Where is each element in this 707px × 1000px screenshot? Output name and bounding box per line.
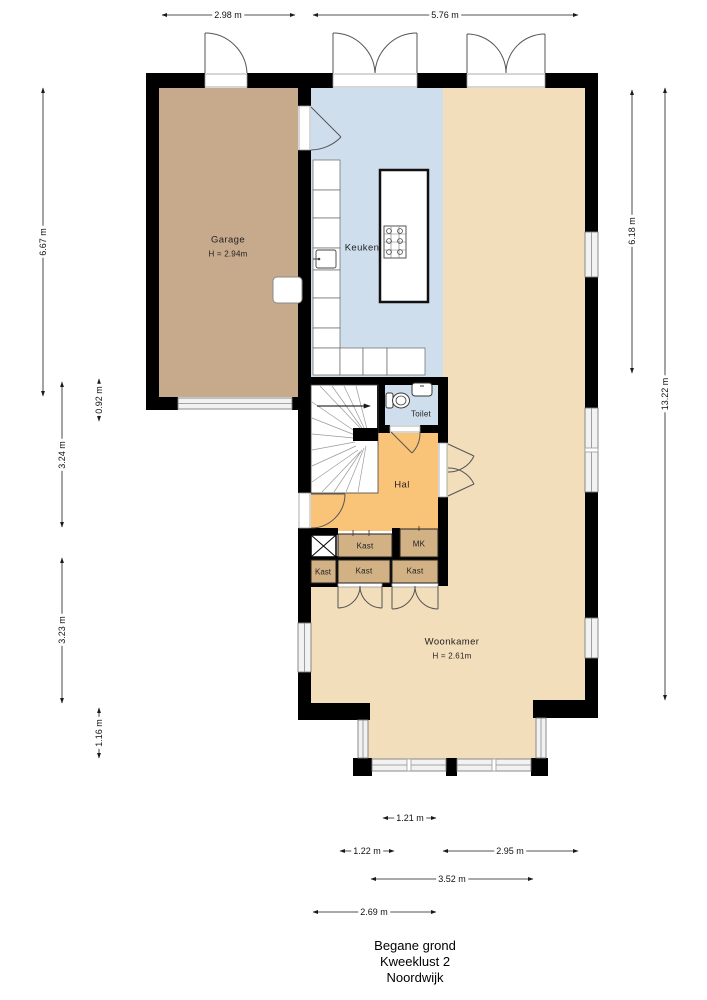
closet-label-kast-right: Kast — [407, 567, 424, 576]
room-label-toilet: Toilet — [411, 410, 431, 419]
dim-bottom-5: 2.69 m — [358, 907, 390, 917]
dim-left-3: 3.24 m — [57, 439, 67, 471]
bay-right-window — [536, 718, 546, 758]
dim-left-4: 3.23 m — [57, 614, 67, 646]
dim-top-1: 2.98 m — [212, 10, 244, 20]
right-wall-window-1 — [585, 232, 598, 277]
floors-group — [159, 88, 585, 759]
french-door-woonkamer — [467, 34, 545, 73]
toilet-icon — [386, 393, 410, 408]
closet-label-kast-small: Kast — [315, 568, 331, 577]
garage-door — [205, 33, 247, 73]
garage-window — [178, 398, 292, 409]
shaft-icon — [311, 535, 336, 557]
bay-bottom-window-1 — [372, 759, 446, 771]
room-height-garage: H = 2.94m — [209, 250, 248, 259]
right-wall-window-2 — [585, 408, 598, 492]
dim-bottom-2: 1.22 m — [351, 846, 383, 856]
left-wall-window — [298, 623, 311, 672]
stove-icon — [384, 226, 406, 258]
dim-left-1: 6.67 m — [38, 226, 48, 258]
room-label-woonkamer: Woonkamer — [425, 637, 480, 648]
dim-left-2: 0.92 m — [94, 384, 104, 416]
french-door-keuken — [333, 33, 417, 73]
dim-bottom-1: 1.21 m — [394, 813, 426, 823]
closet-label-mk: MK — [413, 540, 425, 549]
floorplan-canvas: 2.98 m 5.76 m 6.67 m 0.92 m 3.24 m 3.23 … — [0, 0, 707, 1000]
plan-title-street: Kweeklust 2 — [380, 954, 450, 969]
dim-bottom-4: 3.52 m — [436, 874, 468, 884]
room-label-garage: Garage — [211, 235, 245, 246]
dim-top-2: 5.76 m — [429, 10, 461, 20]
room-label-hal: Hal — [394, 480, 409, 491]
dim-bottom-3: 2.95 m — [494, 846, 526, 856]
bay-bottom-window-2 — [457, 759, 531, 771]
plan-title-city: Noordwijk — [386, 970, 443, 985]
dim-left-5: 1.16 m — [94, 717, 104, 749]
room-height-woonkamer: H = 2.61m — [433, 652, 472, 661]
room-label-keuken: Keuken — [345, 243, 380, 254]
toilet-sink-icon — [412, 383, 432, 396]
dim-right-1: 6.18 m — [627, 215, 637, 247]
bay-left-window — [358, 720, 368, 758]
closet-label-kast-mid: Kast — [356, 567, 373, 576]
right-wall-window-3 — [585, 618, 598, 658]
garage-unit-icon — [273, 277, 302, 303]
kitchen-sink-icon — [313, 250, 336, 268]
closet-label-kast-top: Kast — [357, 542, 374, 551]
plan-title-floor: Begane grond — [374, 938, 456, 953]
dim-right-2: 13.22 m — [660, 376, 670, 413]
